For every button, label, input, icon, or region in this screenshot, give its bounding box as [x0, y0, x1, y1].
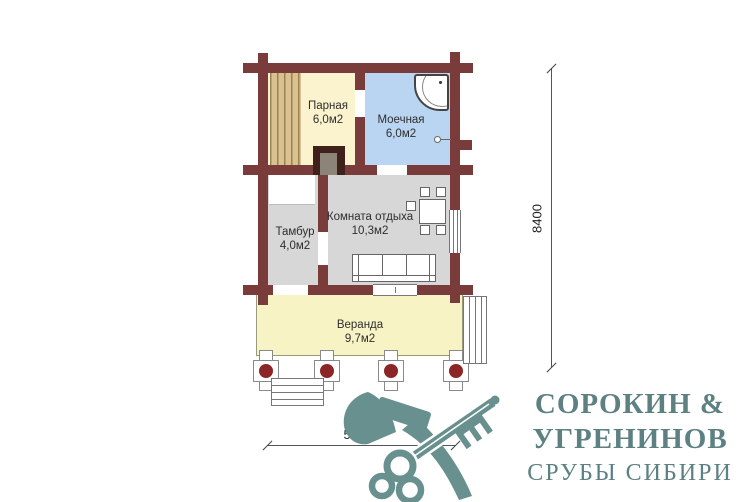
step-line [272, 392, 323, 393]
shower-tray-arc [422, 74, 449, 107]
window-east-pane-line-2 [457, 210, 458, 253]
sofa-cushion-line-2 [406, 255, 407, 275]
room-label-komnata: Комната отдыха 10,3м2 [327, 210, 413, 238]
wall-divider-upper [243, 165, 473, 175]
room-area: 10,3м2 [327, 224, 413, 238]
stove-firebox [320, 153, 337, 175]
sofa-armrest-left [358, 255, 359, 281]
wall-top [243, 63, 473, 73]
step-line [481, 297, 482, 363]
room-label-moechnaya: Моечная 6,0м2 [377, 113, 424, 141]
dimension-line-vertical [551, 68, 552, 368]
chair [436, 225, 446, 235]
dining-table [419, 199, 446, 224]
step-line [475, 297, 476, 363]
log-end-right [460, 140, 472, 150]
logo-text-block: СОРОКИН & УГРЕНИНОВ СРУБЫ СИБИРИ [505, 387, 753, 489]
window-south-mullion [395, 287, 396, 293]
axe-and-key-icon [338, 384, 510, 502]
sofa-cushion-line-1 [382, 255, 383, 275]
floor-drain-icon [434, 136, 441, 143]
tambur-door-opening [269, 175, 315, 205]
door-moechnaya-komnata [377, 165, 407, 175]
column-post [320, 364, 334, 378]
room-area: 6,0м2 [308, 113, 348, 127]
wall-right [450, 52, 460, 303]
wall-left [258, 53, 268, 305]
sofa-seat-line [353, 275, 435, 276]
room-label-tambur: Тамбур 4,0м2 [275, 225, 314, 253]
logo-line-1: СОРОКИН & [505, 387, 753, 422]
steps-front [271, 378, 324, 406]
logo-line-2: УГРЕНИНОВ [505, 422, 753, 457]
column-post [449, 364, 463, 378]
sofa-armrest-right [429, 255, 430, 281]
room-area: 4,0м2 [275, 239, 314, 253]
room-area: 9,7м2 [337, 332, 383, 346]
sofa [352, 254, 436, 282]
wall-parnaya-moechnaya-upper [355, 73, 365, 90]
wall-parnaya-moechnaya-lower [355, 117, 365, 165]
floorplan-page: Парная 6,0м2 Моечная 6,0м2 Тамбур 4,0м2 … [0, 0, 753, 502]
room-label-veranda: Веранда 9,7м2 [337, 318, 383, 346]
step-line [469, 297, 470, 363]
room-name: Веранда [337, 318, 383, 332]
room-name: Комната отдыха [327, 210, 413, 224]
room-area: 6,0м2 [377, 127, 424, 141]
room-name: Моечная [377, 113, 424, 127]
key-tip [491, 396, 500, 405]
shower-drain-dot [439, 81, 442, 84]
chair [420, 225, 430, 235]
room-label-parnaya: Парная 6,0м2 [308, 99, 348, 127]
window-south [373, 284, 417, 296]
logo-line-3: СРУБЫ СИБИРИ [505, 457, 753, 489]
step-line [272, 399, 323, 400]
window-east [449, 210, 461, 253]
room-name: Парная [308, 99, 348, 113]
chair [420, 187, 430, 197]
column-post [384, 364, 398, 378]
column-post [259, 364, 273, 378]
window-east-pane-line-1 [453, 210, 454, 253]
chair [436, 187, 446, 197]
door-veranda-tambur [273, 285, 308, 295]
steps-side [463, 296, 487, 364]
dimension-label-height: 8400 [530, 198, 545, 240]
sauna-bench [270, 73, 301, 165]
step-line [272, 385, 323, 386]
room-name: Тамбур [275, 225, 314, 239]
key-bow [372, 453, 421, 501]
wall-tambur-komnata-lower [318, 265, 328, 285]
floor-drain-line [441, 139, 451, 140]
